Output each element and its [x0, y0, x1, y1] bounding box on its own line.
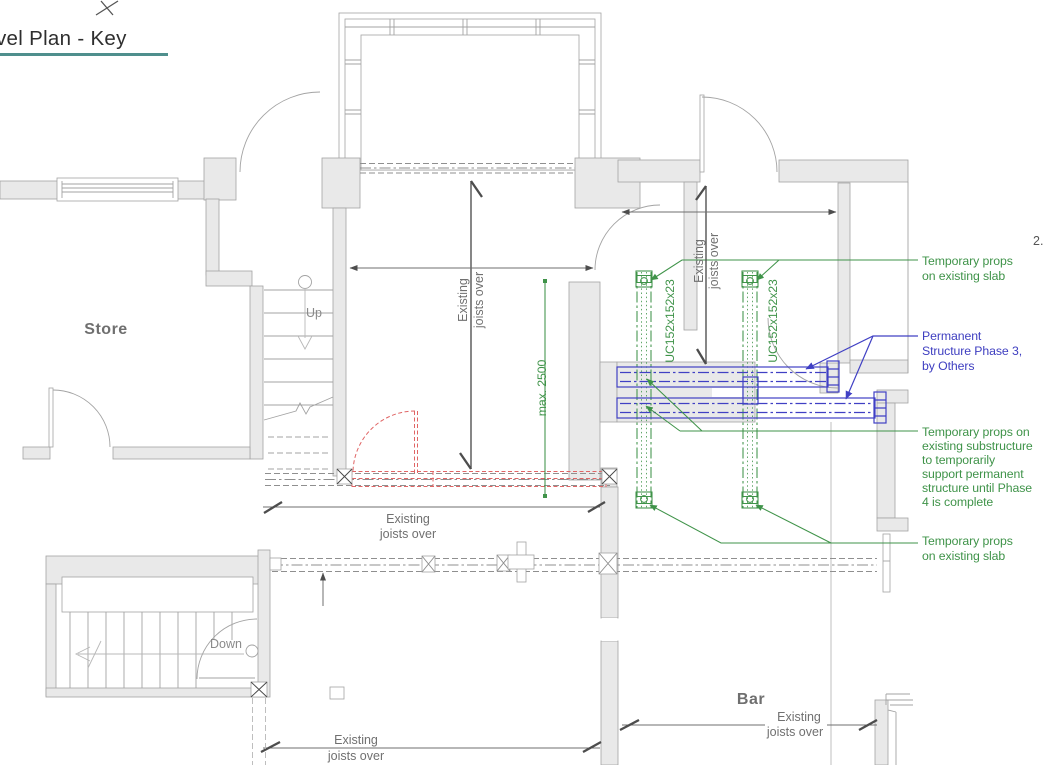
prop-symbol: [636, 492, 652, 508]
annotation-line: 4 is complete: [922, 495, 993, 509]
demolition-red: [352, 411, 606, 487]
room-label-bar: Bar: [737, 691, 765, 708]
xbox-dark: [602, 469, 617, 484]
annotation-props-substructure: Tempor​ary props on existing substructur…: [922, 425, 1033, 509]
window-top-left: [57, 178, 178, 201]
uc-column-label: UC152x152x23: [766, 279, 780, 363]
page-title: vel Plan - Key: [0, 27, 127, 51]
door-red-dashed: [353, 411, 415, 473]
door-top-right: [700, 95, 777, 172]
floor-plan-drawing: 2. Store Bar Up Down Existing joists ove…: [0, 0, 1049, 765]
annotation-props-slab-top: Temporary props on existing slab: [922, 254, 1013, 283]
dim-label: Existing: [777, 710, 821, 724]
column-stub: [330, 687, 344, 699]
annotation-line: on existing slab: [922, 549, 1005, 563]
walls: [0, 158, 913, 765]
annotation-line: support permanent: [922, 467, 1024, 481]
annotation-line: existing substructure: [922, 439, 1033, 453]
annotation-line: Permanent: [922, 329, 982, 343]
annotation-line: structure until Phase: [922, 481, 1032, 495]
prop-symbol: [742, 271, 758, 287]
door-center-top: [595, 205, 660, 270]
door-top-left: [240, 92, 320, 172]
xbox-light: [599, 553, 617, 574]
uc-column-label: UC152x152x23: [663, 279, 677, 363]
floor-plan-canvas: 2. Store Bar Up Down Existing joists ove…: [0, 0, 1049, 765]
dim-label: joists over: [766, 725, 823, 739]
door-store-bottom: [49, 388, 110, 447]
annotation-props-slab-bottom: Temporary props on existing slab: [922, 534, 1013, 563]
annotation-line: by Others: [922, 359, 974, 373]
prop-symbol: [742, 492, 758, 508]
bay-window: [339, 13, 601, 170]
annotation-line: Temporary props: [922, 254, 1013, 268]
prop-symbol: [636, 271, 652, 287]
dim-label: Existing: [692, 239, 706, 283]
sheet-note: 2.: [1033, 234, 1043, 248]
xbox-light: [422, 556, 435, 572]
title-underline: [0, 53, 168, 56]
dim-label: joists over: [327, 749, 384, 763]
beam-connection-symbols: [251, 469, 617, 697]
room-label-store: Store: [84, 321, 127, 338]
stairs-up-label: Up: [306, 306, 322, 320]
annotation-line: Tempor​ary props on: [922, 425, 1030, 439]
stairs-up: [264, 276, 333, 470]
dim-label: joists over: [472, 272, 486, 329]
stairs-down: [62, 577, 344, 699]
cross-column: [508, 542, 534, 582]
xbox-dark: [337, 469, 352, 484]
dim-label: Existing: [334, 733, 378, 747]
wall-center: [569, 282, 600, 480]
annotation-line: on existing slab: [922, 269, 1005, 283]
dim-label: Existing: [386, 512, 430, 526]
annotation-line: Temporary props: [922, 534, 1013, 548]
stairs-down-label: Down: [210, 637, 242, 651]
key-cross-icon: [96, 1, 118, 15]
dim-label: joists over: [707, 233, 721, 290]
wall-pillar: [204, 158, 236, 200]
annotation-permanent-structure: Permanent Structure Phase 3, by Others: [922, 329, 1022, 373]
dim-label: Existing: [456, 278, 470, 322]
xbox-dark: [251, 682, 267, 697]
dim-label: joists over: [379, 527, 436, 541]
annotation-line: to temporarily: [922, 453, 996, 467]
dim-max-2500-label: max. 2500: [535, 359, 549, 416]
annotation-line: Structure Phase 3,: [922, 344, 1022, 358]
